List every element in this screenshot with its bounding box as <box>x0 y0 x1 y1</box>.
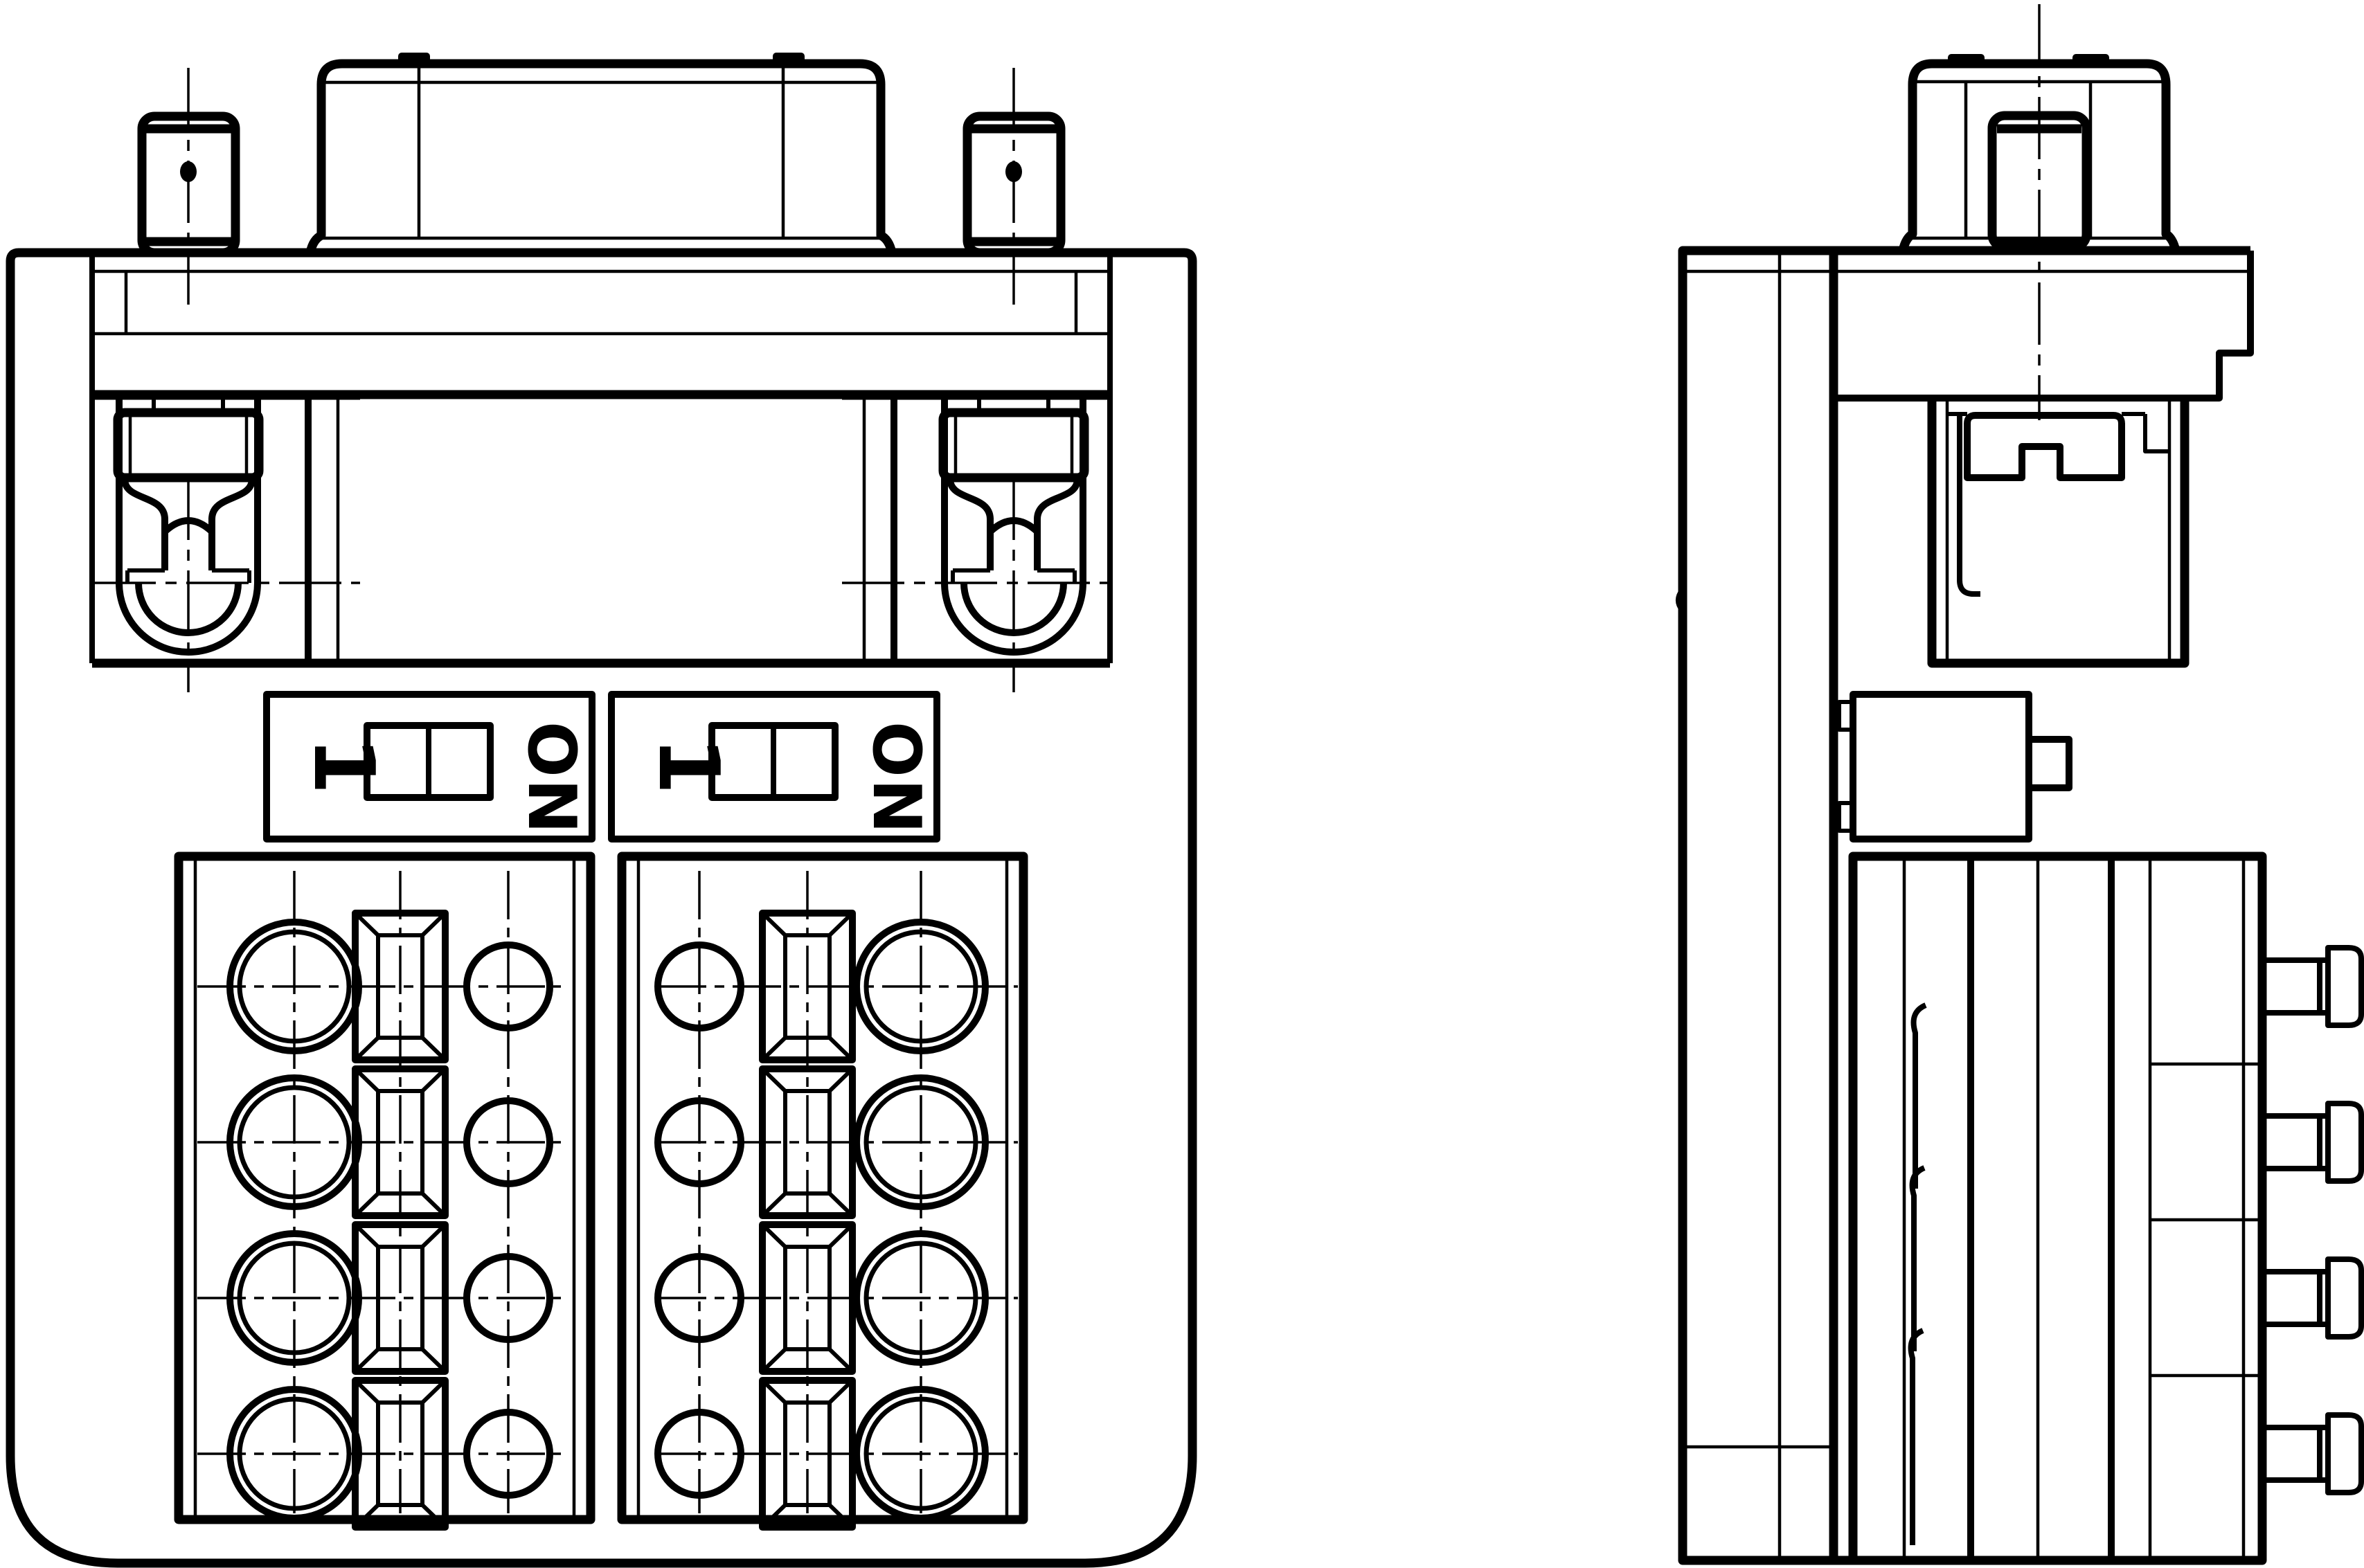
terminal-rows <box>197 913 1018 1527</box>
flange-rail <box>92 253 1110 663</box>
side-view <box>1678 4 2361 1560</box>
screw-post-left <box>142 68 235 305</box>
side-terminal-screw[interactable] <box>2262 1415 2361 1493</box>
connector-shell <box>310 53 892 253</box>
body-outline <box>10 253 1192 1563</box>
dip-position-label: 1 <box>295 737 391 795</box>
housing-thick-walls <box>1971 856 2111 1560</box>
shell-outline <box>310 64 892 253</box>
clamp-head-profile <box>1967 415 2122 478</box>
clamp-block-inner-walls <box>1947 398 2169 663</box>
side-terminal-screws <box>2262 948 2361 1493</box>
terminal-row <box>658 1225 1018 1371</box>
dip-on-label: ON <box>858 721 934 835</box>
side-clamp-block <box>1932 398 2185 663</box>
latch-tab-left <box>1948 54 1985 65</box>
terminal-row <box>658 913 1018 1060</box>
dip-position-label: 1 <box>640 737 736 795</box>
clamp-yoke-left <box>118 396 259 692</box>
side-terminal-housing <box>1834 856 2361 1560</box>
shell-face-lines <box>313 82 889 238</box>
plate-outline <box>1683 251 1834 1560</box>
terminal-row <box>197 1225 561 1371</box>
shell-seams <box>419 66 783 238</box>
side-dip-switch <box>1839 694 2069 839</box>
drawing-canvas: 1 ON 1 ON <box>0 0 2364 1568</box>
cable-clamp-left <box>92 395 360 692</box>
front-view: 1 ON 1 ON <box>10 53 1192 1563</box>
latch-tab-left <box>398 53 430 65</box>
dip-body <box>1853 694 2029 839</box>
housing-latch-line <box>1911 1005 1926 1545</box>
clamp-yoke-right <box>943 396 1084 692</box>
dip-actuator[interactable] <box>2029 739 2069 788</box>
dip-switch-right: 1 ON <box>611 694 937 839</box>
dip-pin-bottom <box>1839 803 1853 831</box>
dip-switch-left: 1 ON <box>267 694 592 839</box>
cable-clamp-right <box>842 395 1110 692</box>
housing-shelf-lines <box>2150 1064 2262 1376</box>
latch-tab-right <box>2072 54 2109 65</box>
terminal-row <box>197 1380 561 1527</box>
shell-seams <box>1966 82 2090 238</box>
side-terminal-screw[interactable] <box>2262 948 2361 1025</box>
side-connector-shell <box>1903 4 2176 420</box>
screw-post-right <box>967 68 1061 305</box>
side-terminal-screw[interactable] <box>2262 1259 2361 1337</box>
latch-tab-right <box>773 53 805 65</box>
housing-thin-walls <box>1904 856 2244 1560</box>
flange-side-walls <box>92 253 1110 663</box>
dip-pin-top <box>1839 702 1853 730</box>
side-front-plate <box>1678 251 1834 1560</box>
terminal-row <box>658 1069 1018 1216</box>
terminal-row <box>197 1069 561 1216</box>
connector-technical-drawing: 1 ON 1 ON <box>0 0 2364 1568</box>
side-terminal-screw[interactable] <box>2262 1103 2361 1181</box>
terminal-row <box>658 1380 1018 1527</box>
flange-face-lines <box>92 271 1110 334</box>
dip-on-label: ON <box>513 721 589 835</box>
side-flange <box>1683 251 2250 398</box>
flange-seams <box>126 271 1076 334</box>
terminal-row <box>197 913 561 1060</box>
